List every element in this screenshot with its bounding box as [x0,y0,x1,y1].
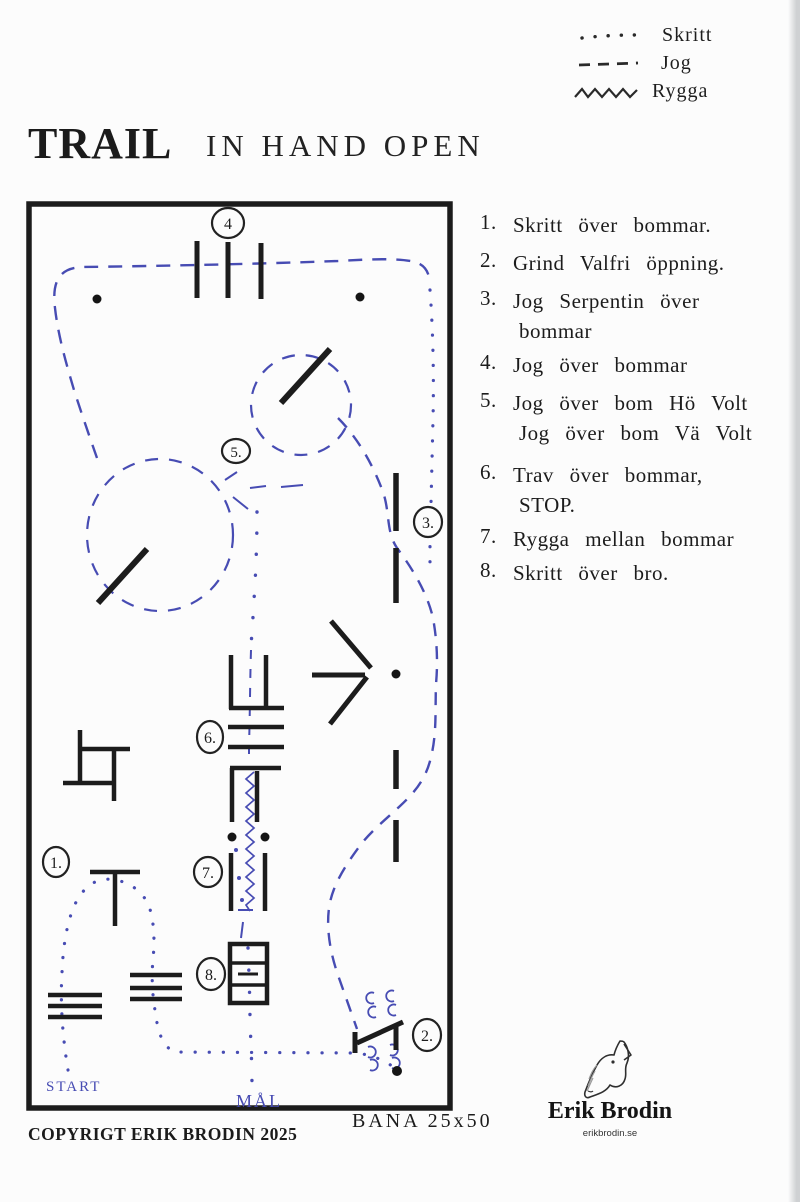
skritt-path-start-loop [61,879,394,1070]
arena-size-label: BANA 25x50 [352,1110,493,1133]
marker-label-8: 8. [205,967,217,984]
jog-path-top [54,259,430,458]
skritt-path-to-goal [248,948,252,1090]
marker-label-5: 5. [230,445,241,461]
obstacles [48,241,403,1076]
rygga-zigzag-path [246,772,254,911]
volt-circle-right [251,355,351,455]
pinwheel-poles [63,730,130,801]
path-dot [240,898,244,902]
obstacle-2-gate [355,1022,403,1053]
copyright-text: COPYRIGT ERIK BRODIN 2025 [28,1124,297,1145]
obstacle-1-cavaletti-right [130,975,182,999]
course-map-drawing: 1. 2. 3. 4 5. 6. 7. 8. START MÅL [0,0,800,1202]
marker-label-6: 6. [204,730,216,747]
marker-label-2: 2. [421,1028,433,1045]
scanned-trail-course-page: Skritt Jog Rygga TRAIL IN HAND OPEN 1. S… [0,0,800,1202]
course-paths [54,259,437,1090]
goal-label: MÅL [236,1091,282,1111]
obstacle-1-t-poles [90,872,140,926]
path-dot [234,848,238,852]
obstacle-5-pole-left-volt [98,549,147,603]
start-label: START [46,1079,101,1095]
horse-head-logo-icon [580,1038,642,1102]
fan-poles [312,621,371,724]
obstacle-6-pole-corridor [228,655,284,822]
arena-border [29,204,450,1108]
logo-name: Erik Brodin [545,1098,675,1125]
obstacle-4-poles [197,241,261,299]
jog-connector-dashes [225,472,303,509]
scan-edge-shadow [788,0,800,1202]
marker-label-1: 1. [50,855,62,872]
logo-website: erikbrodin.se [545,1128,675,1139]
course-marker-dots [93,293,403,1077]
skritt-path-centre [251,512,257,646]
marker-label-3: 3. [422,515,434,532]
marker-label-4: 4 [224,216,232,233]
stop-tick [238,910,253,938]
path-dot [237,876,241,880]
obstacle-1-cavaletti-left [48,995,102,1017]
marker-label-7: 7. [202,865,214,882]
